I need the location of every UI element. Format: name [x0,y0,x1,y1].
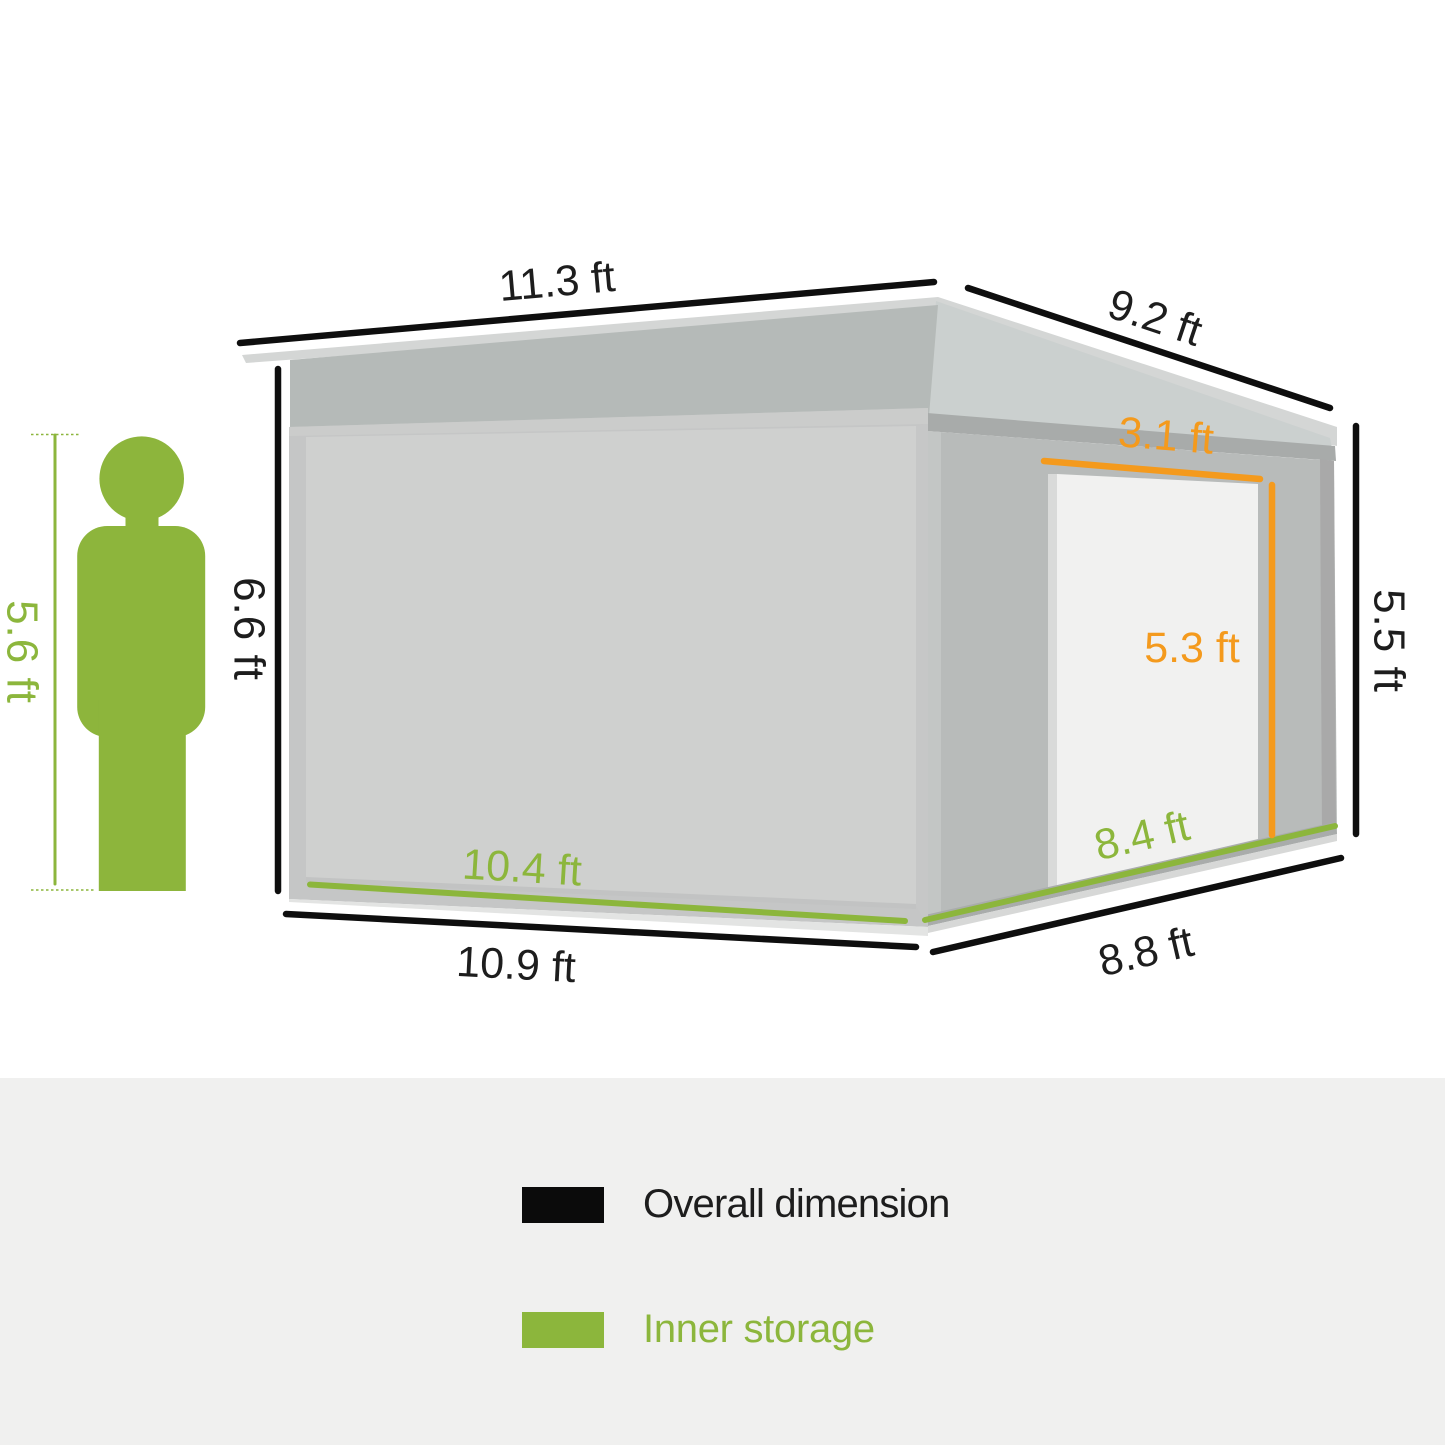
svg-text:10.4 ft: 10.4 ft [461,840,583,895]
svg-text:5.6 ft: 5.6 ft [0,600,47,704]
svg-text:10.9 ft: 10.9 ft [455,938,577,992]
svg-text:6.6 ft: 6.6 ft [225,577,274,681]
svg-text:3.1 ft: 3.1 ft [1116,408,1215,463]
svg-text:Overall dimension: Overall dimension [643,1182,950,1226]
svg-text:5.5 ft: 5.5 ft [1365,589,1414,693]
svg-text:5.3 ft: 5.3 ft [1144,624,1240,672]
svg-text:11.3 ft: 11.3 ft [497,253,617,311]
svg-text:Inner storage: Inner storage [643,1307,875,1351]
